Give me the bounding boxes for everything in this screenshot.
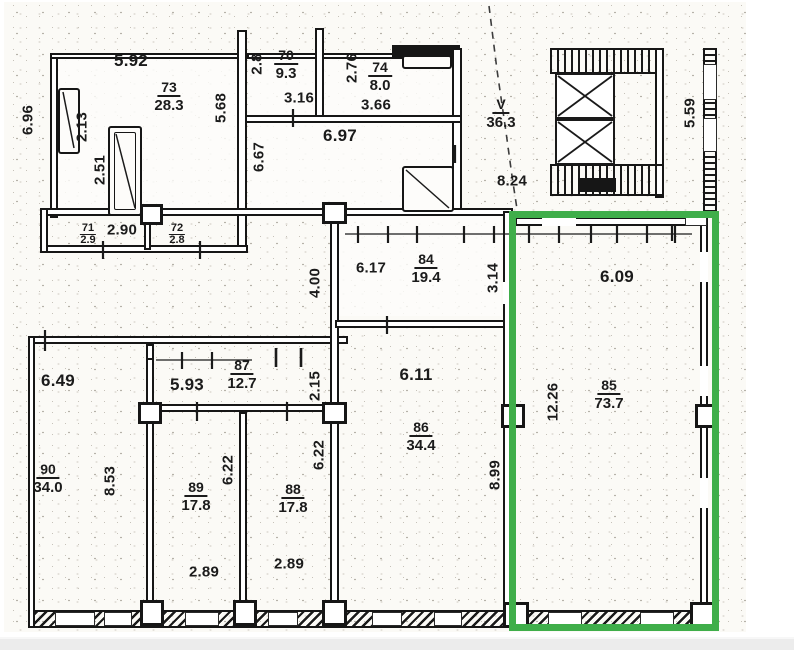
wall-segment: [315, 28, 324, 123]
dim-8-53: 8.53: [102, 466, 119, 496]
room-number: 90: [36, 462, 60, 479]
dim-5-68: 5.68: [213, 93, 230, 123]
room-label-70: 70 9.3: [274, 48, 298, 82]
room-area: 17.8: [181, 498, 210, 513]
wall-segment: [335, 320, 510, 328]
column: [140, 600, 164, 626]
room-area: 36.3: [486, 115, 515, 130]
closet-inner: [114, 132, 136, 210]
dim-5-59: 5.59: [682, 98, 699, 128]
wall-segment: [146, 358, 154, 628]
room-label-74: 74 8.0: [368, 60, 392, 94]
wall-segment: [245, 115, 462, 123]
window-opening: [55, 612, 95, 626]
dim-3-66: 3.66: [361, 97, 391, 114]
window-opening: [434, 612, 462, 626]
window-opening: [372, 612, 402, 626]
dim-5-93: 5.93: [170, 375, 204, 395]
room-number: 87: [230, 358, 254, 375]
closet: [402, 55, 452, 69]
window-opening: [104, 612, 132, 626]
room-number: 84: [414, 252, 438, 269]
column: [233, 600, 257, 626]
dim-6-17: 6.17: [356, 260, 386, 277]
dim-2-89: 2.89: [274, 556, 304, 573]
room-label-84: 84 19.4: [411, 252, 440, 286]
dim-4-00: 4.00: [307, 268, 324, 298]
room-label-88: 88 17.8: [278, 482, 307, 516]
column: [138, 402, 162, 424]
highlight-rect-room-85: [509, 211, 719, 631]
room-area: 17.8: [278, 500, 307, 515]
room-label-71: 71 2.9: [80, 219, 96, 247]
door-opening-mark: [578, 178, 616, 192]
column: [322, 600, 347, 626]
room-area: 28.3: [154, 98, 183, 113]
column: [322, 202, 347, 224]
dim-6-96: 6.96: [20, 105, 37, 135]
room-number: 73: [157, 80, 181, 97]
room-number: 88: [281, 482, 305, 499]
column: [322, 402, 347, 424]
room-area: 9.3: [274, 66, 298, 81]
room-area: 8.0: [368, 78, 392, 93]
window-opening: [703, 118, 717, 152]
window-opening: [703, 64, 717, 100]
wall-segment: [50, 53, 58, 218]
wall-segment: [150, 404, 337, 412]
dim-8-24: 8.24: [497, 173, 527, 190]
floor-plan-canvas: 5.92 6.96 2.13 2.51 5.68 2.8 3.16 2.76 3…: [0, 0, 794, 650]
room-area: 2.9: [80, 235, 96, 246]
dim-3-14: 3.14: [485, 263, 502, 293]
dim-2-15: 2.15: [307, 371, 324, 401]
dim-6-67: 6.67: [251, 142, 268, 172]
dim-2-51: 2.51: [92, 155, 109, 185]
wall-segment: [239, 412, 247, 628]
room-area: 12.7: [227, 376, 256, 391]
room-area: 34.4: [406, 438, 435, 453]
bottom-gray-band: [0, 637, 794, 650]
room-label-72: 72 2.8: [169, 219, 185, 247]
dim-2-13: 2.13: [74, 112, 91, 142]
column: [140, 204, 163, 225]
door-leaf: [402, 166, 454, 212]
room-label-90: 90 34.0: [33, 462, 62, 496]
room-area: 2.8: [169, 235, 185, 246]
dim-2-8: 2.8: [249, 53, 266, 74]
room-label-V: V 36.3: [486, 97, 515, 131]
dim-2-89: 2.89: [189, 564, 219, 581]
wall-segment: [144, 222, 151, 250]
window-opening: [268, 612, 298, 626]
room-number: 70: [274, 48, 298, 65]
room-label-89: 89 17.8: [181, 480, 210, 514]
dim-8-99: 8.99: [487, 460, 504, 490]
wall-segment: [237, 30, 247, 253]
room-label-86: 86 34.4: [406, 420, 435, 454]
dim-6-49: 6.49: [41, 371, 75, 391]
dim-2-76: 2.76: [344, 53, 361, 83]
room-number: 89: [184, 480, 208, 497]
elevator-core-wall: [550, 48, 662, 74]
dim-6-97: 6.97: [323, 126, 357, 146]
dim-6-22: 6.22: [311, 440, 328, 470]
dim-3-16: 3.16: [284, 90, 314, 107]
dim-6-11: 6.11: [400, 365, 433, 385]
room-number: V: [492, 97, 509, 114]
room-area: 34.0: [33, 480, 62, 495]
room-label-73: 73 28.3: [154, 80, 183, 114]
room-area: 19.4: [411, 270, 440, 285]
room-number: 86: [409, 420, 433, 437]
wall-segment: [28, 336, 348, 344]
room-number: 74: [368, 60, 392, 77]
dim-5-92: 5.92: [114, 51, 148, 71]
dim-2-90: 2.90: [107, 222, 137, 239]
dim-6-22: 6.22: [220, 455, 237, 485]
wall-segment: [40, 208, 48, 253]
room-label-87: 87 12.7: [227, 358, 256, 392]
window-opening: [185, 612, 219, 626]
